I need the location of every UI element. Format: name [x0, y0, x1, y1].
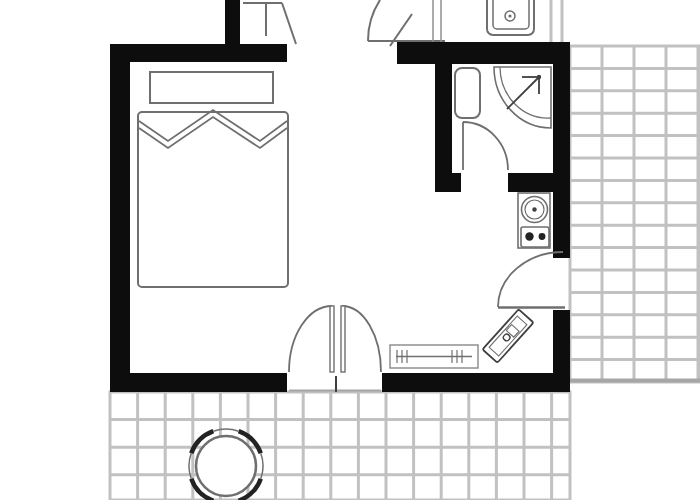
bed-headboard-shelf [150, 72, 273, 103]
wall-top-right [397, 42, 570, 64]
patio-round-table [196, 436, 256, 496]
wall-left [110, 44, 130, 392]
bed [138, 112, 288, 287]
upper-kitchen-sink-drain-dot [508, 14, 511, 17]
upper-hall-door-leaf-diagonal [282, 3, 296, 44]
patio-chair-thin-arc-n [213, 429, 238, 431]
upper-hall-door-arc [368, 0, 380, 41]
wall-bottom-right [382, 373, 570, 392]
balcony-door-leaf-right [341, 306, 345, 372]
console-table-rotated [483, 309, 534, 363]
bathroom-door-arc [463, 122, 508, 170]
balcony-door-arc-right [342, 306, 381, 372]
wall-bathroom-left [435, 64, 452, 174]
wall-top-left [110, 44, 287, 62]
balcony-door-arc-left [289, 306, 332, 372]
wall-bottom-left [110, 373, 287, 392]
terrace-right-tiles [570, 46, 700, 382]
terrace-door-arc [498, 252, 563, 307]
kitchenette-burner-right [539, 233, 546, 240]
wall-right-upper [553, 64, 570, 258]
toilet [455, 68, 480, 118]
shower-arrow-dot [537, 75, 541, 79]
floor-plan-canvas [0, 0, 700, 500]
wall-upper-stub [225, 0, 240, 44]
kitchenette-burner-left [525, 232, 533, 240]
kitchenette-sink-drain [532, 207, 536, 211]
terrace-bottom-tiles [110, 392, 570, 500]
floor-plan [0, 0, 700, 500]
wall-bathroom-bottom-stub [435, 173, 461, 192]
balcony-door-leaf-left [330, 306, 334, 372]
